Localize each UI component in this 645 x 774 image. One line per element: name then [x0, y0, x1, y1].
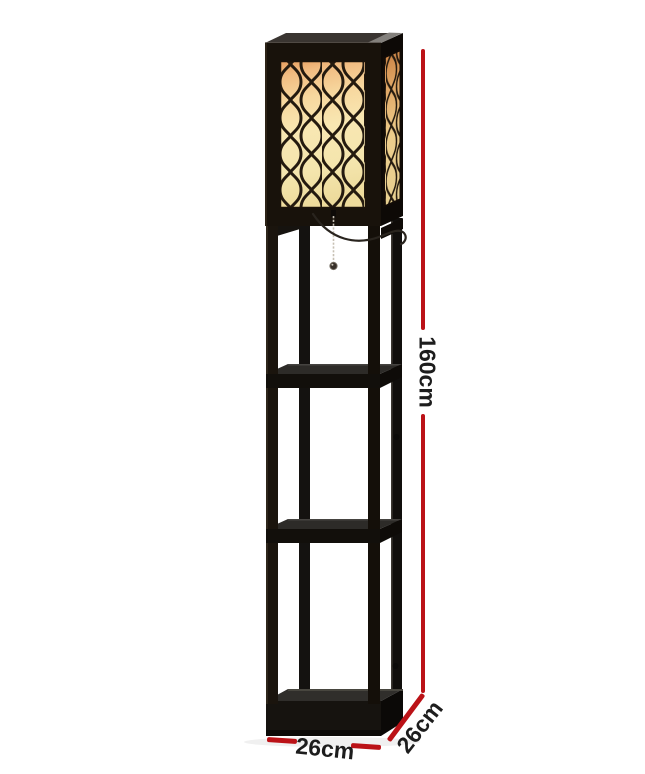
floor-lamp-illustration — [0, 0, 645, 774]
shelf-front-bars — [266, 374, 380, 543]
base-shelf — [266, 689, 403, 736]
lamp-shade — [265, 33, 403, 227]
width-dimension-label: 26cm — [295, 734, 356, 763]
product-image: 160cm 26cm 26cm — [0, 0, 645, 774]
height-dimension-line-lower — [421, 414, 425, 693]
cord-clip-knob — [393, 663, 399, 669]
height-dimension-label: 160cm — [416, 336, 439, 408]
lamp-shade-front-panel — [280, 61, 366, 208]
back-legs — [299, 218, 402, 690]
cord-switch-knob — [394, 434, 400, 440]
front-legs — [266, 226, 380, 704]
lamp-shade-side-panel — [381, 33, 403, 226]
height-dimension-line-upper — [421, 49, 425, 330]
